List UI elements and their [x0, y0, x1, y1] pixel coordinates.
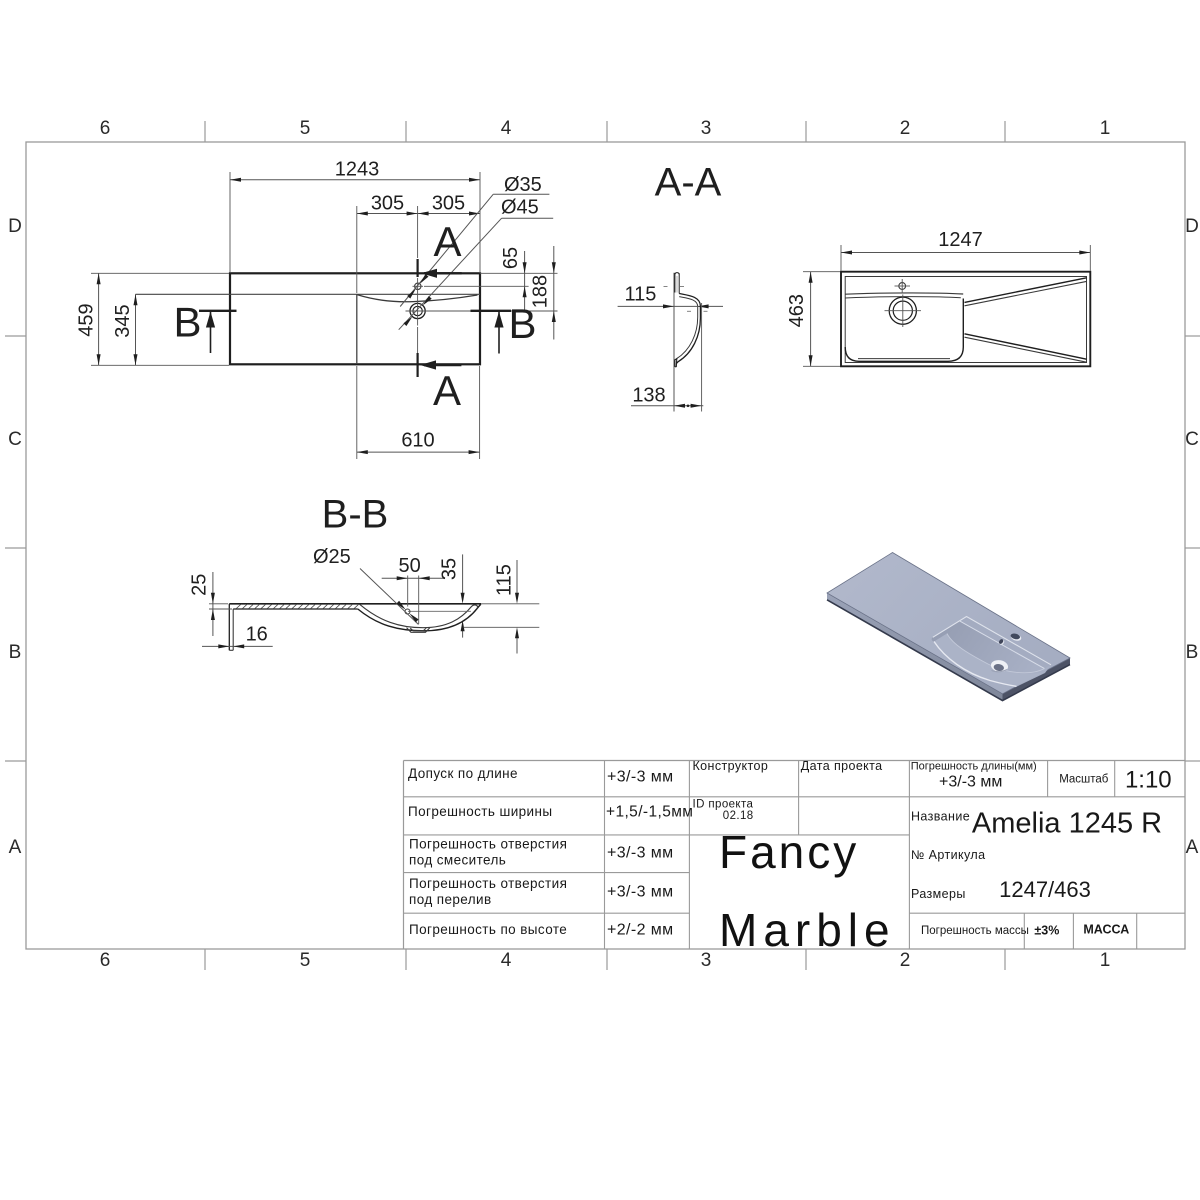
- svg-text:Конструктор: Конструктор: [693, 759, 769, 773]
- svg-text:D: D: [1185, 216, 1199, 237]
- svg-text:138: 138: [632, 384, 665, 406]
- svg-text:25: 25: [188, 574, 210, 596]
- svg-text:C: C: [1185, 429, 1199, 450]
- svg-text:±3%: ±3%: [1034, 923, 1059, 937]
- svg-text:345: 345: [112, 304, 134, 337]
- svg-text:Погрешность отверстия: Погрешность отверстия: [409, 837, 567, 852]
- svg-text:Marble: Marble: [719, 904, 896, 956]
- svg-text:3: 3: [701, 118, 712, 139]
- svg-text:3: 3: [701, 950, 712, 971]
- svg-text:под смеситель: под смеситель: [409, 853, 506, 868]
- svg-text:A: A: [433, 367, 461, 414]
- svg-text:Размеры: Размеры: [911, 887, 966, 901]
- svg-text:610: 610: [401, 429, 434, 451]
- svg-text:50: 50: [398, 555, 420, 577]
- svg-text:Ø45: Ø45: [501, 197, 539, 219]
- svg-text:№ Артикула: № Артикула: [911, 848, 985, 862]
- svg-text:+3/-3 мм: +3/-3 мм: [607, 845, 674, 862]
- svg-text:6: 6: [100, 950, 111, 971]
- svg-text:A: A: [1186, 837, 1199, 858]
- svg-text:1: 1: [1100, 118, 1111, 139]
- svg-text:C: C: [8, 429, 22, 450]
- svg-text:5: 5: [300, 950, 311, 971]
- svg-text:ID проекта: ID проекта: [693, 799, 754, 811]
- svg-text:+3/-3 мм: +3/-3 мм: [939, 774, 1002, 791]
- svg-text:B: B: [173, 299, 201, 346]
- svg-text:2: 2: [900, 118, 911, 139]
- svg-text:2: 2: [900, 950, 911, 971]
- svg-text:115: 115: [493, 564, 515, 596]
- svg-text:4: 4: [501, 118, 512, 139]
- svg-text:A-A: A-A: [655, 161, 722, 205]
- svg-text:Amelia 1245 R: Amelia 1245 R: [972, 808, 1162, 840]
- svg-text:Погрешность ширины: Погрешность ширины: [408, 804, 552, 819]
- svg-text:16: 16: [246, 623, 268, 645]
- svg-text:Ø35: Ø35: [504, 174, 542, 196]
- svg-text:459: 459: [75, 303, 97, 336]
- svg-text:65: 65: [500, 247, 522, 269]
- svg-text:+3/-3 мм: +3/-3 мм: [607, 769, 674, 786]
- svg-text:305: 305: [371, 192, 404, 214]
- svg-text:5: 5: [300, 118, 311, 139]
- svg-text:4: 4: [501, 950, 512, 971]
- svg-text:+2/-2 мм: +2/-2 мм: [607, 922, 674, 939]
- svg-text:1247: 1247: [938, 229, 983, 251]
- svg-text:305: 305: [432, 192, 465, 214]
- svg-text:Погрешность длины(мм): Погрешность длины(мм): [911, 760, 1037, 772]
- svg-text:Погрешность массы: Погрешность массы: [921, 925, 1029, 937]
- svg-text:1:10: 1:10: [1125, 766, 1172, 793]
- svg-text:B-B: B-B: [322, 493, 389, 537]
- svg-text:B: B: [9, 642, 22, 663]
- svg-text:1243: 1243: [335, 158, 380, 180]
- svg-text:115: 115: [625, 284, 657, 306]
- svg-text:Дата проекта: Дата проекта: [801, 759, 883, 773]
- svg-text:A: A: [9, 837, 22, 858]
- svg-text:Погрешность по высоте: Погрешность по высоте: [409, 922, 567, 937]
- svg-text:+3/-3 мм: +3/-3 мм: [607, 884, 674, 901]
- svg-text:+1,5/-1,5мм: +1,5/-1,5мм: [606, 804, 693, 821]
- svg-text:Fancy: Fancy: [719, 826, 859, 878]
- svg-text:35: 35: [438, 558, 460, 580]
- svg-text:A: A: [433, 218, 461, 265]
- svg-text:1: 1: [1100, 950, 1111, 971]
- svg-text:02.18: 02.18: [723, 810, 754, 822]
- svg-text:B: B: [508, 300, 536, 347]
- svg-text:Масштаб: Масштаб: [1059, 774, 1109, 786]
- svg-text:под перелив: под перелив: [409, 892, 492, 907]
- svg-text:Название: Название: [911, 809, 970, 823]
- svg-text:1247/463: 1247/463: [999, 877, 1091, 902]
- svg-text:Погрешность отверстия: Погрешность отверстия: [409, 876, 567, 891]
- svg-text:6: 6: [100, 118, 111, 139]
- svg-text:Ø25: Ø25: [313, 546, 351, 568]
- svg-text:463: 463: [786, 294, 808, 327]
- svg-text:D: D: [8, 216, 22, 237]
- svg-text:B: B: [1186, 642, 1199, 663]
- svg-text:МАССА: МАССА: [1083, 922, 1129, 936]
- svg-text:Допуск по длине: Допуск по длине: [408, 766, 518, 781]
